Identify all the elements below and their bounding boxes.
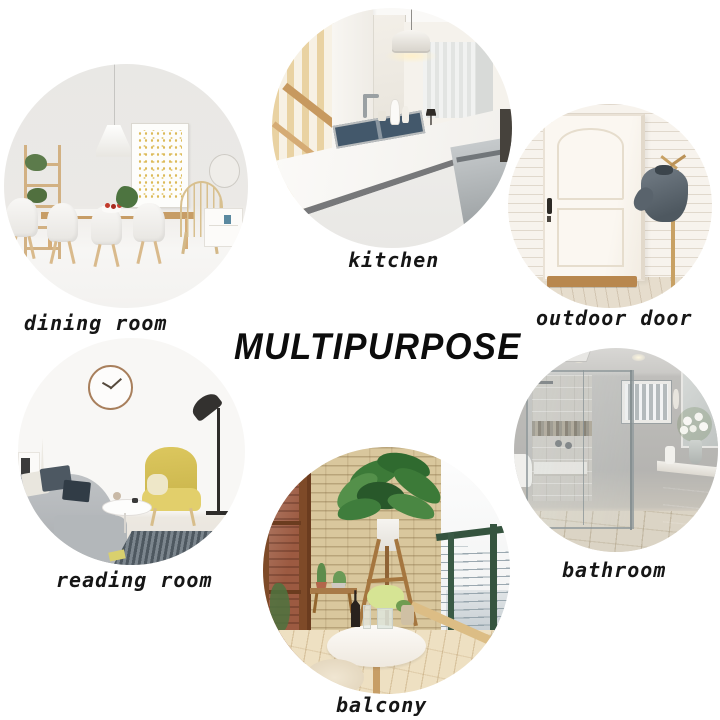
faucet-spout [363,94,379,98]
dining-room-label: dining room [24,311,167,335]
bathroom-photo [514,348,718,552]
pendant-lamp [96,125,133,157]
reading-room-photo [18,338,245,565]
doormat [547,276,637,286]
wall-clock [88,365,133,410]
wall-sconce [673,389,679,409]
outdoor-door-label: outdoor door [536,306,693,330]
door-top-panel [557,128,624,199]
floor-lamp-base [206,511,229,515]
dining-chair [47,203,79,242]
towel [665,446,675,464]
kitchen-label: kitchen [348,248,439,272]
chair-leg [150,508,157,526]
coffee-table [102,499,152,516]
striped-rug [113,531,245,565]
dining-chair [133,203,165,242]
collage-title: MULTIPURPOSE [234,326,522,368]
wine-glass [363,605,371,629]
outdoor-door-photo [508,104,712,308]
armchair-cushion [147,474,167,494]
flower-bouquet [677,407,712,442]
dining-room-photo [4,64,248,308]
railing-post [490,524,496,648]
blue-decor-box [224,215,231,223]
vanity-cabinet [663,472,718,539]
round-stool [305,659,364,694]
balcony-photo [263,447,510,694]
chair-leg [189,508,196,526]
flower-vase [689,440,701,464]
recessed-light [632,354,644,361]
reading-room-label: reading room [56,568,213,592]
floor-lamp-pole [217,408,221,512]
table-leg [124,513,127,533]
window-mullion [269,521,301,524]
pendant-cord [114,64,115,127]
apples [105,203,110,208]
cup [132,498,139,503]
dining-chair [6,198,38,237]
pendant-lamp [392,30,430,52]
door-handle [547,198,552,214]
candle-jar [401,605,413,625]
round-mirror [209,154,240,188]
ceiling-vent [565,350,592,362]
kitchen-photo [272,8,512,248]
art-frame [131,123,189,208]
bottle [390,99,401,125]
door-bottom-panel [557,208,624,267]
glass-vase [377,608,394,630]
hanging-jacket [641,167,688,222]
bathroom-label: bathroom [562,558,666,582]
balcony-label: balcony [336,693,427,717]
glass-door-edge [630,370,632,529]
fruit-bowl [102,206,122,212]
table-plant [116,186,138,208]
mug [378,111,386,121]
door-lock [547,216,551,222]
dark-pillow [62,480,91,503]
sideboard [204,208,243,247]
curtain [476,37,493,123]
glass-panel-seam [583,370,584,525]
multipurpose-collage: MULTIPURPOSE dining room kitchen outdoor… [0,0,720,720]
shelf-plant [25,154,47,171]
art-speckles [137,130,182,200]
pendant-rod [411,8,412,30]
glass-shower-enclosure [526,370,634,529]
bottle [402,106,409,123]
